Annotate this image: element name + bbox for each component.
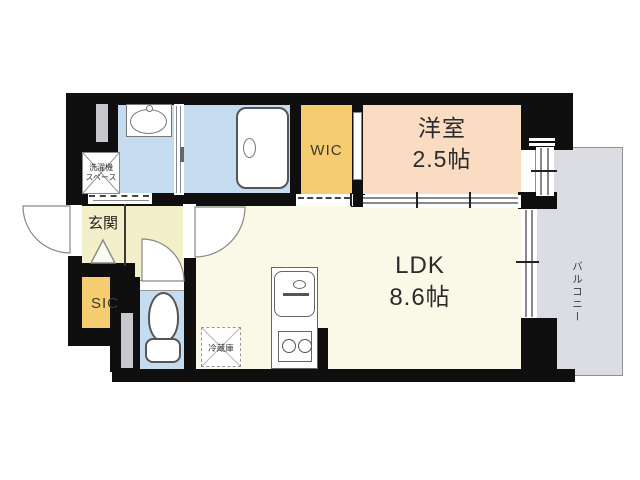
stove-burner [298,339,312,353]
wall-bath-wic [290,93,301,196]
sic-label: SIC [82,294,128,314]
western-slider-tick [469,192,471,208]
bathroom-door-handle [180,147,184,162]
balcony-label: バルコニー [569,232,583,352]
washroom-door-dash [89,195,149,197]
genkan-label: 玄関 [80,214,126,234]
washer-space-line1: 洗濯機 [80,163,122,173]
wall-top-right-corner [521,93,573,150]
bathtub-drain [243,138,256,158]
fridge-label: 冷蔵庫 [201,343,241,353]
western-room-area: 2.5帖 [363,144,521,175]
western-slider-tick [416,192,418,208]
ldk-label: LDK 8.6帖 [310,250,530,314]
vent-louver-line [529,143,555,146]
washbasin-faucet [146,105,153,112]
washroom-door-track [93,200,149,201]
ldk-name: LDK [310,250,530,282]
pipe-space-bottom [121,313,133,368]
ldk-doorway [183,204,196,258]
toilet-bowl [148,292,179,342]
wic-label: WIC [301,141,352,161]
wall-hall-ldk [184,258,196,372]
floorplan-canvas: バルコニー [0,0,640,480]
wic-opening-tick [350,193,352,206]
vent-louver-line [529,138,555,141]
western-room-name: 洋室 [363,113,521,144]
washer-space-label: 洗濯機 スペース [80,163,122,182]
washbasin-bowl [130,109,167,134]
kitchen-faucet [293,280,306,289]
western-window-tick [531,170,557,172]
wall-below-sic [68,328,124,346]
wic-door-leaf [353,112,362,180]
wall-right-lower [521,318,557,373]
western-slider-track [363,197,518,199]
kitchen-faucet-bar [283,293,309,296]
western-room-label: 洋室 2.5帖 [363,113,521,174]
wall-bottom [112,369,575,382]
western-slider-track [363,202,518,204]
toilet-tank [145,338,181,363]
stove-burner [282,339,296,353]
wic-opening [296,194,353,206]
washer-space-line2: スペース [80,173,122,183]
entrance-door-arc [23,206,70,253]
ldk-window-line [531,210,533,317]
ldk-area: 8.6帖 [310,282,530,314]
wic-opening-dash [298,197,350,199]
pipe-space-top [96,104,108,142]
toilet-doorway [140,280,184,291]
bathroom-door-line [176,106,177,193]
